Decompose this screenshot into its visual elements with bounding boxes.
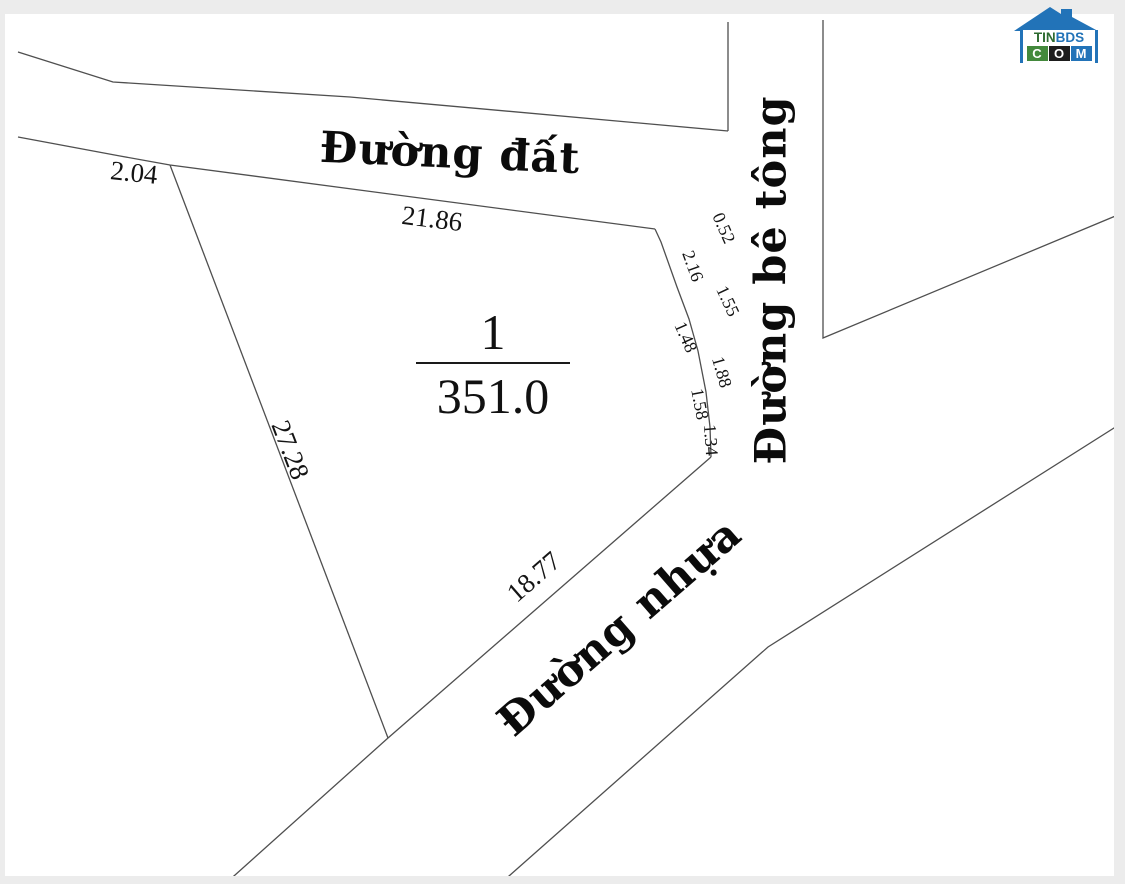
page-edge-bottom [0, 876, 1125, 884]
page-edge-right [1114, 0, 1125, 884]
parcel-number: 1 [412, 305, 574, 359]
page-edge-left [0, 0, 5, 884]
dimension-top-left: 2.04 [109, 157, 159, 189]
tinbds-wordmark: TINBDS [1023, 30, 1095, 45]
parcel-area-value: 351.0 [412, 368, 574, 424]
dimension-segment-7: 1.34 [701, 424, 721, 457]
logo-text-tin: TIN [1034, 30, 1056, 45]
logo-box-m: M [1071, 46, 1092, 61]
dimension-top: 21.86 [400, 202, 464, 236]
com-letter-boxes: C O M [1023, 46, 1095, 61]
page-edge-top [0, 0, 1125, 14]
logo-box-c: C [1027, 46, 1048, 61]
parcel-label: 1 351.0 [412, 305, 574, 424]
road-label-concrete: Đường bê tông [751, 95, 794, 464]
parcel-fraction-divider [416, 362, 570, 364]
logo-box-o: O [1049, 46, 1070, 61]
road-label-dirt: Đường đất [319, 127, 581, 181]
logo-text-bds: BDS [1056, 30, 1085, 45]
house-roof-icon [1014, 5, 1098, 31]
dirt-road-upper-edge [18, 52, 728, 131]
concrete-road-right-edge [823, 20, 1125, 338]
cadastral-parcel-map: Đường đất Đường bê tông Đường nhựa 2.04 … [0, 0, 1125, 884]
tinbds-logo-body: TINBDS C O M [1020, 30, 1098, 63]
asphalt-road-upper-edge [225, 457, 711, 884]
tinbds-logo: TINBDS C O M [1014, 5, 1098, 63]
